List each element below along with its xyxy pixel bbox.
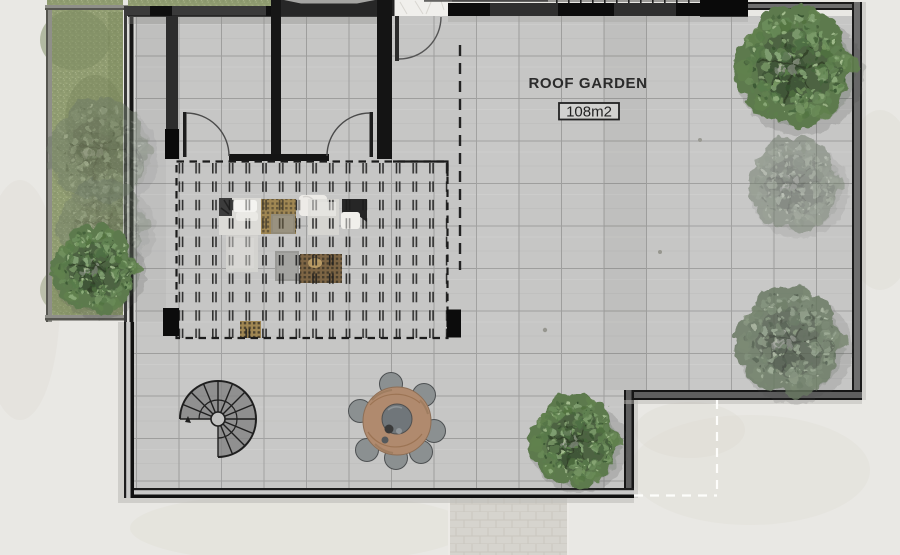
svg-text:ROOF GARDEN: ROOF GARDEN xyxy=(528,75,647,92)
svg-text:108m2: 108m2 xyxy=(566,104,612,121)
